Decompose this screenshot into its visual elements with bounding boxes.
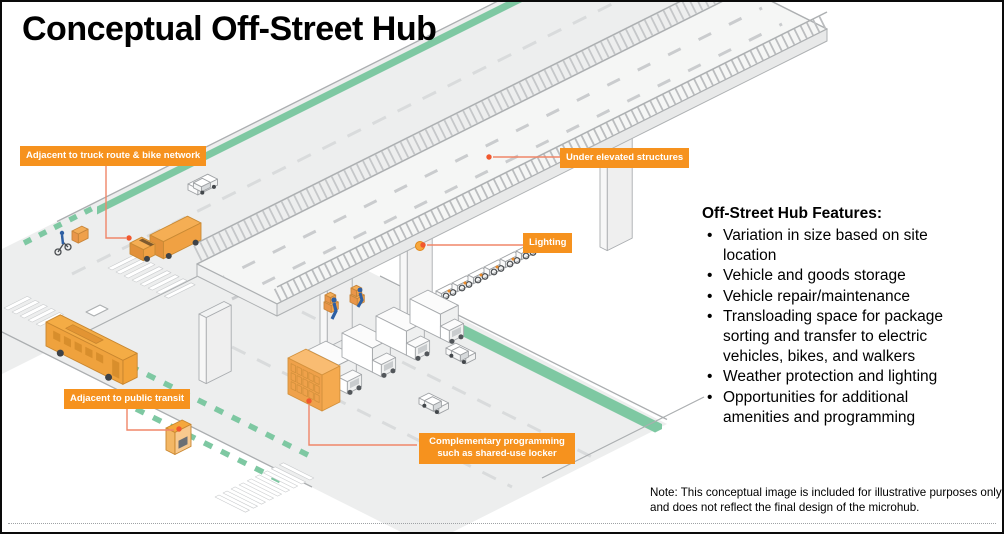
callout-elevated: Under elevated structures: [560, 148, 689, 168]
features-heading: Off-Street Hub Features:: [702, 205, 990, 223]
feature-item: Weather protection and lighting: [702, 367, 967, 387]
page-title: Conceptual Off-Street Hub: [22, 10, 436, 49]
slide: Conceptual Off-Street Hub Adjacent to tr…: [0, 0, 1004, 534]
feature-item: Vehicle and goods storage: [702, 266, 967, 286]
callout-transit: Adjacent to public transit: [64, 389, 190, 409]
features-panel: Off-Street Hub Features: Variation in si…: [702, 205, 990, 428]
feature-item: Variation in size based on site location: [702, 226, 967, 266]
callout-truck-route: Adjacent to truck route & bike network: [20, 146, 206, 166]
dotted-divider: [8, 523, 996, 524]
feature-item: Vehicle repair/maintenance: [702, 287, 967, 307]
callout-programming: Complementary programming such as shared…: [419, 433, 575, 464]
note-text: Note: This conceptual image is included …: [650, 486, 1002, 515]
feature-item: Opportunities for additional amenities a…: [702, 388, 967, 428]
callout-lighting: Lighting: [523, 233, 572, 253]
features-list: Variation in size based on site location…: [702, 226, 990, 428]
feature-item: Transloading space for package sorting a…: [702, 307, 967, 368]
